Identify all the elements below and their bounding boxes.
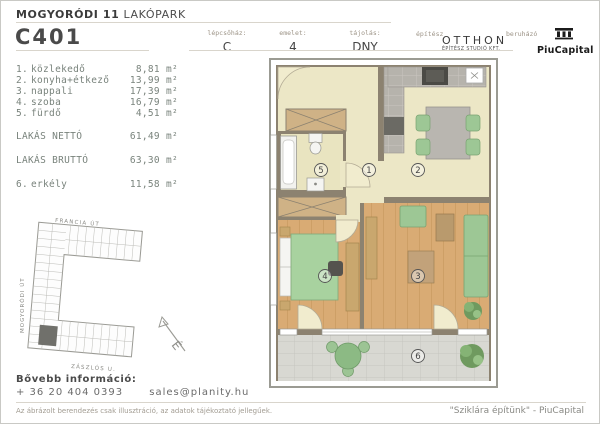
field-orientation-value: DNY (335, 40, 395, 54)
room-name: közlekedő (31, 64, 85, 75)
header-divider-right (189, 50, 513, 51)
north-label: É (169, 338, 185, 353)
field-orientation-label: tájolás: (335, 29, 395, 37)
room-name: nappali (31, 86, 73, 97)
desk (346, 243, 359, 311)
wall-kitchen-living (384, 197, 489, 203)
piucapital-temple-icon (553, 27, 575, 40)
street-label-zaszlos: ZÁSZLÓS U. (71, 363, 116, 373)
contact-email: sales@planity.hu (149, 387, 249, 398)
total-gross-value: 63,30 (130, 155, 160, 166)
dining-chair (416, 139, 430, 155)
developer-name: PiuCapital (537, 45, 591, 56)
field-staircase-label: lépcsőház: (197, 29, 257, 37)
room-index: 6. (16, 179, 31, 190)
stove-top (426, 70, 444, 82)
total-net-value: 61,49 (130, 131, 160, 142)
side-table (436, 214, 454, 241)
room-index: 2. (16, 75, 31, 86)
armchair (400, 206, 426, 227)
area-table: 1.közlekedő 8,81 m² 2.konyha+étkező 13,9… (16, 64, 178, 190)
total-net-row: LAKÁS NETTÓ 61,49 m² (16, 131, 178, 143)
floor-plan: 5 1 2 4 3 6 (269, 58, 498, 388)
total-gross-label: LAKÁS BRUTTÓ (16, 155, 88, 167)
room-label-hall: 1 (366, 166, 371, 176)
kitchen-appliance (384, 117, 404, 135)
architect-label: építész (416, 30, 443, 38)
room-area: 17,39 (130, 86, 160, 97)
architect-name: OTTHON (442, 34, 507, 47)
site-highlighted-unit (38, 325, 58, 346)
room-label-bedroom: 4 (322, 272, 327, 282)
washbasin-faucet (314, 183, 317, 186)
room-label-living: 3 (415, 272, 420, 282)
project-title-bold: MOGYORÓDI 11 (16, 8, 119, 21)
balcony-row: 6.erkély 11,58 m² (16, 179, 178, 190)
room-area: 4,51 (136, 108, 160, 119)
room-index: 1. (16, 64, 31, 75)
field-staircase-value: C (197, 40, 257, 54)
dining-chair (466, 115, 480, 131)
room-name: fürdő (31, 108, 61, 119)
room-hall-floor (346, 67, 378, 217)
room-unit: m² (166, 86, 178, 97)
room-unit: m² (166, 64, 178, 75)
slogan-text: "Sziklára építünk" - PiuCapital (450, 406, 584, 416)
developer-label: beruházó (506, 30, 537, 38)
area-row-5: 5.fürdő 4,51 m² (16, 108, 178, 119)
contact-line: + 36 20 404 0393 sales@planity.hu (16, 387, 249, 398)
bathtub-basin (283, 140, 294, 184)
room-unit: m² (166, 179, 178, 190)
developer-logo: PiuCapital (537, 25, 591, 56)
room-label-balcony: 6 (415, 352, 420, 362)
kitchen-sink-box (466, 68, 483, 83)
area-row-2: 2.konyha+étkező 13,99 m² (16, 75, 178, 86)
site-building-outline (28, 222, 143, 357)
wardrobe-bedroom (278, 197, 346, 217)
total-gross-row: LAKÁS BRUTTÓ 63,30 m² (16, 155, 178, 167)
room-unit: m² (166, 108, 178, 119)
dining-chair (416, 115, 430, 131)
room-area: 13,99 (130, 75, 160, 86)
area-row-1: 1.közlekedő 8,81 m² (16, 64, 178, 75)
room-index: 3. (16, 86, 31, 97)
room-area: 11,58 (130, 179, 160, 190)
bedroom-window (271, 233, 277, 305)
room-name: erkély (31, 179, 67, 190)
project-title-regular: LAKÓPARK (124, 8, 186, 21)
area-row-4: 4.szoba 16,79 m² (16, 97, 178, 108)
dining-chair (466, 139, 480, 155)
room-index: 5. (16, 108, 31, 119)
wardrobe-entry (286, 109, 346, 131)
toilet-tank (309, 134, 322, 143)
total-net-label: LAKÁS NETTÓ (16, 131, 82, 143)
site-plan: FRANCIA ÚT MOGYORÓDI ÚT ZÁSZLÓS U. É (15, 211, 193, 373)
field-floor-label: emelet: (265, 29, 321, 37)
room-area: 16,79 (130, 97, 160, 108)
room-name: konyha+étkező (31, 75, 109, 86)
room-name: szoba (31, 97, 61, 108)
dining-table (426, 107, 470, 159)
nightstand (280, 301, 290, 310)
footer-divider (16, 402, 586, 403)
header-divider-left (16, 50, 149, 51)
room-label-bathroom: 5 (318, 166, 323, 176)
north-arrow: É (159, 317, 185, 353)
living-plant (464, 302, 482, 320)
more-info-label: Bővebb információ: (16, 374, 136, 385)
brochure-page: MOGYORÓDI 11 LAKÓPARK C401 lépcsőház: C … (0, 0, 600, 424)
contact-phone: + 36 20 404 0393 (16, 387, 123, 398)
room-area: 8,81 (136, 64, 160, 75)
nightstand (280, 227, 290, 236)
street-label-mogyorodi: MOGYORÓDI ÚT (19, 277, 26, 333)
field-floor-value: 4 (265, 40, 321, 54)
total-net-unit: m² (166, 131, 178, 142)
bathroom-window (271, 135, 277, 189)
room-index: 4. (16, 97, 31, 108)
header-divider-top (16, 22, 391, 23)
balcony-plant (460, 344, 484, 368)
room-label-kitchen: 2 (415, 166, 420, 176)
hall-kitchen-opening (376, 161, 386, 203)
project-title: MOGYORÓDI 11 LAKÓPARK (16, 8, 186, 21)
tv-cabinet (366, 217, 377, 279)
unit-code: C401 (15, 25, 82, 49)
room-unit: m² (166, 97, 178, 108)
room-unit: m² (166, 75, 178, 86)
toilet-bowl (310, 142, 321, 154)
balcony-floor (278, 335, 489, 381)
disclaimer-text: Az ábrázolt berendezés csak illusztráció… (16, 407, 272, 415)
area-row-3: 3.nappali 17,39 m² (16, 86, 178, 97)
total-gross-unit: m² (166, 155, 178, 166)
wall-bedroom-living (360, 203, 364, 329)
